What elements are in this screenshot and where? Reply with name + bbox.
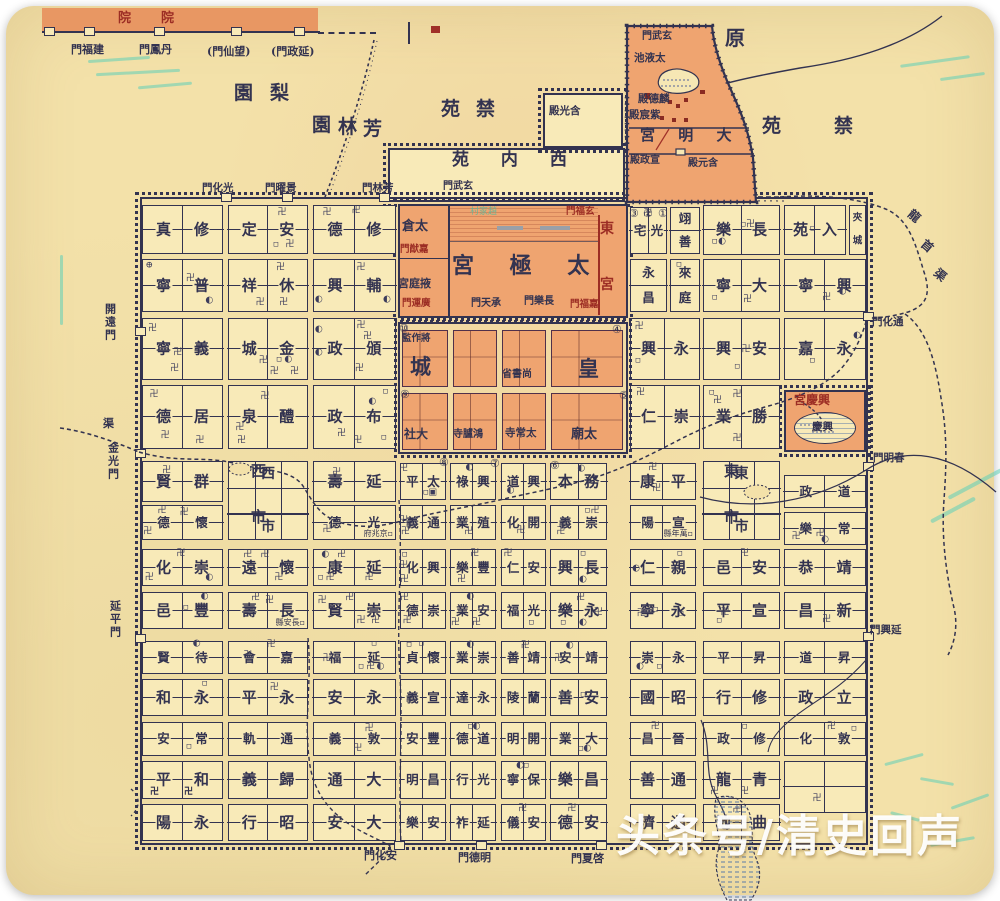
temple-swastika-icon: 卍 xyxy=(451,619,460,628)
ward-name-char: 光 xyxy=(650,224,665,237)
temple-swastika-icon: 卍 xyxy=(278,208,287,217)
temple-swastika-icon: 卍 xyxy=(322,525,331,534)
ward-cross-line xyxy=(422,549,423,586)
ward-name-char: 宅 xyxy=(633,224,648,237)
ward-name-char: 崇 xyxy=(673,410,690,425)
ward-name-char: 光 xyxy=(367,516,382,529)
gate-opening-icon xyxy=(596,841,607,850)
ward-name-char: 安 xyxy=(405,733,420,746)
ward-cross-line xyxy=(354,461,355,502)
office-square-icon: ▫ xyxy=(317,574,323,583)
temple-swastika-icon: 卍 xyxy=(399,464,408,473)
ward-name-char: 興 xyxy=(426,561,441,574)
imperial-city-label: 皇 xyxy=(578,358,599,380)
ward-cross-line xyxy=(182,461,183,502)
ward-cross-line xyxy=(422,679,423,716)
temple-swastika-icon: 卍 xyxy=(237,436,246,445)
halfmoon-symbol-icon: ◐ xyxy=(579,619,587,628)
imperial-city-block xyxy=(402,393,448,450)
ward-name-char: 大 xyxy=(365,773,382,788)
ward-賢群: 賢群卍 xyxy=(142,461,223,502)
ward-name-char: 崇 xyxy=(584,516,599,529)
ward-cross-line xyxy=(662,463,663,500)
temple-swastika-icon: 卍 xyxy=(270,367,279,376)
ward-昌晉: 昌晉卍 xyxy=(630,722,696,756)
ward-name-char: 通 xyxy=(327,773,344,788)
canal-label: 渠 xyxy=(103,418,114,430)
daming-palace-label: 宮 明 大 xyxy=(640,128,740,144)
street-number-marker: ⑩ xyxy=(399,323,409,334)
ward-name-char: 樂 xyxy=(799,522,814,535)
ward-name-char: 待 xyxy=(194,651,209,664)
gate-guanghua: 門化光 xyxy=(202,183,234,194)
gate-fanglin: 門林芳 xyxy=(362,183,394,194)
ward-政修: 政修▫ xyxy=(703,722,780,756)
ward-name-char: 安 xyxy=(527,816,542,829)
ward-name-char: 普 xyxy=(193,278,210,293)
temple-swastika-icon: 卍 xyxy=(270,684,279,693)
ward-name-char: 布 xyxy=(365,410,382,425)
ward-仁親: 仁親◐▫ xyxy=(630,549,696,586)
office-square-icon: ▫ xyxy=(716,617,722,626)
gate-opening-icon xyxy=(135,327,146,336)
office-square-icon: ▫ xyxy=(678,610,684,619)
office-square-icon: ▫ xyxy=(528,619,534,628)
ward-cross-line xyxy=(523,722,524,756)
ward-壽延: 壽延卍 xyxy=(313,461,396,502)
gate-xuanfu: 門福玄 xyxy=(566,207,595,217)
ward-name-char: 仁 xyxy=(639,560,656,575)
temple-swastika-icon: 卍 xyxy=(150,390,159,399)
watermark-text: 头条号/清史回声 xyxy=(616,800,964,864)
ward-name-char: 翊 xyxy=(678,213,693,226)
temple-swastika-icon: 卍 xyxy=(371,617,380,626)
gate-mingde: 門德明 xyxy=(458,852,491,864)
liyuan-label: 梨 xyxy=(270,84,289,104)
gate-changle: 門樂長 xyxy=(524,297,554,308)
halfmoon-symbol-icon: ◐ xyxy=(632,564,640,573)
market-street-line xyxy=(754,461,755,540)
street-number-marker: ① xyxy=(658,208,668,219)
ward-夾城: 夾城 xyxy=(849,205,866,255)
temple-swastika-icon: 卍 xyxy=(274,574,283,583)
temple-swastika-icon: 卍 xyxy=(740,549,749,558)
ward-cross-line xyxy=(267,205,268,254)
ward-德光: 德光卍府兆京▫ xyxy=(313,505,396,540)
ward-name-char: 光 xyxy=(527,604,542,617)
temple-swastika-icon: 卍 xyxy=(355,365,364,374)
ward-name-char: 常 xyxy=(194,733,209,746)
street-number-marker: ⑤ xyxy=(619,390,629,401)
temple-swastika-icon: 卍 xyxy=(732,435,741,444)
market-street-line xyxy=(281,461,282,540)
ward-name-char: 立 xyxy=(836,690,853,705)
ward-康平: 康平卍卍 xyxy=(630,463,696,500)
temple-swastika-icon: 卍 xyxy=(732,390,741,399)
ward-name-char: 樂 xyxy=(405,816,420,829)
gate-yanzheng: (門政延) xyxy=(271,46,314,58)
temple-swastika-icon: 卍 xyxy=(635,323,644,332)
office-square-icon: ▫ xyxy=(276,355,282,364)
ward-name-char: 道 xyxy=(799,651,814,664)
ward-name-char: 祿 xyxy=(455,475,470,488)
office-square-icon: ▫ xyxy=(371,640,377,649)
ward-安常: 安常▫ xyxy=(142,722,223,756)
gate-danfeng: 門鳳丹 xyxy=(139,44,172,56)
ward-name-char: 和 xyxy=(155,690,172,705)
ward-name-char: 豐 xyxy=(193,603,210,618)
ward-name-char: 寧 xyxy=(155,278,172,293)
temple-swastika-icon: 卍 xyxy=(195,436,204,445)
office-square-icon: ▫ xyxy=(635,357,641,366)
temple-swastika-icon: 卍 xyxy=(710,788,719,797)
temple-swastika-icon: 卍 xyxy=(290,367,299,376)
gate-wangxian: (門仙望) xyxy=(207,46,250,58)
ward-泉醴: 泉醴卍卍卍 xyxy=(228,385,308,449)
imperial-city-block xyxy=(453,393,497,450)
ward-明開: 明開 xyxy=(501,722,546,756)
ward-name-char: 輔 xyxy=(365,278,382,293)
plateau-label: 原 xyxy=(725,28,745,49)
ward-name-char: 軌 xyxy=(242,733,257,746)
ward-cross-line xyxy=(422,722,423,756)
dashe-label: 社大 xyxy=(404,428,428,441)
ward-安大: 安大 xyxy=(313,804,396,841)
ward-name-char: 福 xyxy=(506,604,521,617)
office-square-icon: ▫ xyxy=(676,261,682,270)
temple-swastika-icon: 卍 xyxy=(651,723,660,732)
ward-cross-line xyxy=(523,463,524,500)
academy-label: 院 xyxy=(161,12,174,26)
ward-name-char: 保 xyxy=(527,774,542,787)
ward-name-char: 樂 xyxy=(455,561,470,574)
ward-樂安: 樂安 xyxy=(400,804,446,841)
honglu-si-label: 寺臚鴻 xyxy=(453,430,483,441)
ward-邑安: 邑安卍 xyxy=(703,549,780,586)
ward-name-char: 賢 xyxy=(156,651,171,664)
fanglin-garden-label: 芳 xyxy=(363,120,382,140)
palace-inner-wall xyxy=(400,258,448,259)
ward-cross-line xyxy=(422,592,423,629)
ward-cross-line xyxy=(523,679,524,716)
ward-name-char: 平 xyxy=(155,773,172,788)
halfmoon-symbol-icon: ◐ xyxy=(473,722,481,731)
temple-swastika-icon: 卍 xyxy=(576,593,585,602)
river-streak-icon xyxy=(60,255,63,325)
ward-name-char: 明 xyxy=(506,733,521,746)
temple-swastika-icon: 卍 xyxy=(186,275,195,284)
temple-swastika-icon: 卍 xyxy=(470,549,479,558)
temple-swastika-icon: 卍 xyxy=(648,463,657,472)
ward-來庭: 來庭▫ xyxy=(670,259,700,312)
taimiao-label: 廟太 xyxy=(571,428,597,442)
west-market-label: 市 xyxy=(251,510,266,526)
ward-name-char: 延 xyxy=(365,474,382,489)
temple-swastika-icon: 卍 xyxy=(636,389,645,398)
ward-name-char: 嘉 xyxy=(797,342,814,357)
ward-name-char: 定 xyxy=(241,222,258,237)
ward-name-char: 開 xyxy=(527,733,542,746)
ward-name-char: 道 xyxy=(837,485,852,498)
street-number-marker: ② xyxy=(643,208,653,219)
ward-name-char: 宣 xyxy=(671,516,686,529)
ward-name-char: 入 xyxy=(821,223,838,238)
ward-name-char: 常 xyxy=(837,522,852,535)
ward-name-char: 寧 xyxy=(155,342,172,357)
ward-name-char: 永 xyxy=(278,690,295,705)
ward-name-char: 國 xyxy=(639,690,656,705)
office-square-icon: ▫ xyxy=(656,662,662,671)
ward-善通: 善通 xyxy=(630,761,696,799)
ward-name-char: 開 xyxy=(527,516,542,529)
gate-qixia: 門夏啓 xyxy=(571,853,604,865)
ward-崇永: 崇永◐▫ xyxy=(630,641,696,674)
ward-龍青: 龍青卍卍 xyxy=(703,761,780,799)
ward-cross-line xyxy=(578,679,579,716)
ward-寧保: 寧保◐▫ xyxy=(501,761,546,799)
ward-安豐: 安豐 xyxy=(400,722,446,756)
ward-name-char: 善 xyxy=(557,690,574,705)
ward-cross-line xyxy=(472,679,473,716)
temple-swastika-icon: 卍 xyxy=(720,609,729,618)
ward-name-char: 安 xyxy=(156,733,171,746)
ward-name-char: 業 xyxy=(558,733,573,746)
ward-樂昌: 樂昌 xyxy=(550,761,607,799)
imperial-city-label: 城 xyxy=(410,356,431,378)
shangshu-sheng-label: 省書尚 xyxy=(502,370,532,381)
ward-name-char: 豐 xyxy=(426,733,441,746)
hanguang-hall-compound xyxy=(543,93,623,148)
ward-name-char: 永 xyxy=(671,651,686,664)
temple-swastika-icon: 卍 xyxy=(353,744,362,753)
ward-義宣: 義宣 xyxy=(400,679,446,716)
ward-cross-line xyxy=(662,761,663,799)
halfmoon-symbol-icon: ◐ xyxy=(315,295,323,304)
office-square-icon: ▫ xyxy=(418,640,424,649)
ward-name-char: 壽 xyxy=(241,603,258,618)
ward-cross-line xyxy=(662,549,663,586)
flag-tick xyxy=(408,22,410,44)
gate-opening-icon xyxy=(135,449,146,458)
ward-name-char: 安 xyxy=(278,222,295,237)
office-square-icon: ▫ xyxy=(406,641,412,650)
gate-jiafu: 門福嘉 xyxy=(570,300,599,310)
ward-恭靖: 恭靖 xyxy=(784,549,866,586)
ward-name-char: 行 xyxy=(455,774,470,787)
ward-業大: 業大▫◐ xyxy=(550,722,607,756)
office-square-icon: ▫ xyxy=(482,736,488,745)
temple-swastika-icon: 卍 xyxy=(157,506,166,515)
office-square-icon: ▫ xyxy=(810,225,816,234)
ward-德居: 德居卍卍卍 xyxy=(142,385,223,449)
ward-寧興: 寧興卍◐ xyxy=(784,259,866,312)
halfmoon-symbol-icon: ◐ xyxy=(821,535,829,544)
temple-swastika-icon: 卍 xyxy=(345,593,354,602)
ward-儀安: 儀安卍 xyxy=(501,804,546,841)
temple-swastika-icon: 卍 xyxy=(260,550,269,559)
imperial-city-block xyxy=(453,330,497,387)
ward-翊善: 翊善 xyxy=(670,207,700,254)
ward-name-char: 興 xyxy=(327,278,344,293)
office-square-icon: ▫ xyxy=(560,619,566,628)
office-square-icon: ▫ xyxy=(202,680,208,689)
forbidden-park-label: 禁 xyxy=(476,100,495,120)
ward-name-char: 化 xyxy=(799,733,814,746)
ward-cross-line xyxy=(662,592,663,629)
ward-行修: 行修 xyxy=(703,679,780,716)
ward-會嘉: 會嘉卍卍 xyxy=(228,641,308,674)
ward-嘉永: 嘉永▫◐ xyxy=(784,318,866,380)
street-number-marker: ⑨ xyxy=(400,389,410,400)
ward-cross-line xyxy=(824,259,825,312)
ward-name-char: 敦 xyxy=(837,733,852,746)
ward-福光: 福光▫ xyxy=(501,592,546,629)
ward-樂長: 樂長▫卍▫◐ xyxy=(703,205,780,255)
ward-遠懷: 遠懷卍卍卍 xyxy=(228,549,308,586)
ward-name-char: 和 xyxy=(193,773,210,788)
temple-swastika-icon: 卍 xyxy=(652,485,661,494)
fanglin-garden-label: 林 xyxy=(338,118,357,138)
academy-label: 院 xyxy=(118,12,131,26)
ward-壽長: 壽長卍卍縣安長▫ xyxy=(228,592,308,629)
ward-化興: 化興▫卍卍 xyxy=(400,549,446,586)
gate-xuanwu-westpark: 門武玄 xyxy=(443,182,473,193)
taicang-label: 倉太 xyxy=(402,220,428,234)
ward-業殖: 業殖卍 xyxy=(450,505,496,540)
ward-name-char: 善 xyxy=(506,651,521,664)
ward-化敦: 化敦卍▫ xyxy=(784,722,866,756)
east-palace-label: 宮 xyxy=(600,278,614,293)
ward-name-char: 明 xyxy=(405,774,420,787)
ward-name-char: 昌 xyxy=(426,774,441,787)
gate-chunming: 門明春 xyxy=(873,453,905,464)
ward-name-char: 陽 xyxy=(155,815,172,830)
office-square-icon: ▫ xyxy=(358,663,364,672)
ward-name-char: 通 xyxy=(670,773,687,788)
gate-jingyao: 門曜景 xyxy=(265,183,297,194)
ward-name-char: 晉 xyxy=(671,733,686,746)
temple-swastika-icon: 卍 xyxy=(399,516,408,525)
gate-yanxing: 門興延 xyxy=(870,625,902,636)
ward-name-char: 貞 xyxy=(405,651,420,664)
gate-guangyun: 門運廣 xyxy=(402,299,431,309)
ward-name-char: 仁 xyxy=(640,410,657,425)
ward-cross-line xyxy=(741,592,742,629)
ward-cross-line xyxy=(422,804,423,841)
office-square-icon: ▣ xyxy=(428,489,437,498)
office-square-icon: ▫ xyxy=(677,549,683,558)
ward-name-char: 政 xyxy=(799,485,814,498)
ward-西市: 西市 xyxy=(228,461,308,540)
linde-hall-label: 殿德麟 xyxy=(638,94,670,105)
ward-name-char: 業 xyxy=(455,604,470,617)
ward-name-char: 安 xyxy=(751,342,768,357)
temple-swastika-icon: 卍 xyxy=(148,324,157,333)
ward-cross-line xyxy=(354,259,355,312)
ward-name-char: 延 xyxy=(476,816,491,829)
ward-name-char: 永 xyxy=(193,690,210,705)
ward-cross-line xyxy=(182,804,183,841)
ward-cross-line xyxy=(267,318,268,380)
halfmoon-symbol-icon: ◐ xyxy=(583,744,591,753)
taiji-palace-label: 宮 極 太 xyxy=(452,255,603,278)
ward-仁安: 仁安卍 xyxy=(501,549,546,586)
ward-德懷: 德懷卍卍卍 xyxy=(142,505,223,540)
east-market-label: 市 xyxy=(724,510,739,526)
ward-name-char: 永 xyxy=(365,690,382,705)
temple-swastika-icon: 卍 xyxy=(403,617,412,626)
ward-name-char: 業 xyxy=(715,410,732,425)
office-square-icon: ▫ xyxy=(809,357,815,366)
ward-name-char: 德 xyxy=(155,410,172,425)
ward-name-char: 達 xyxy=(455,691,470,704)
ward-cross-line xyxy=(824,475,825,508)
temple-swastika-icon: 卍 xyxy=(276,264,285,273)
grey-dash xyxy=(540,226,570,230)
ward-cross-line xyxy=(354,679,355,716)
temple-swastika-icon: 卍 xyxy=(356,264,365,273)
ward-化開: 化開卍 xyxy=(501,505,546,540)
halfmoon-symbol-icon: ◐ xyxy=(201,593,209,602)
ward-義通: 義通卍卍 xyxy=(400,505,446,540)
temple-swastika-icon: 卍 xyxy=(822,615,831,624)
ward-name-char: 儀 xyxy=(506,816,521,829)
ward-行昭: 行昭 xyxy=(228,804,308,841)
forbidden-park-label: 禁 xyxy=(834,117,853,137)
gate-yanping: 延平門 xyxy=(109,600,121,639)
ward-樂豐: 樂豐卍卍 xyxy=(450,549,496,586)
gate-opening-icon xyxy=(135,634,146,643)
temple-swastika-icon: 卍 xyxy=(822,293,831,302)
ward-name-char: 遠 xyxy=(241,560,258,575)
ward-寧普: 寧普⊕卍◐ xyxy=(142,259,223,312)
ward-name-char: 業 xyxy=(455,651,470,664)
ward-name-char: 祚 xyxy=(455,816,470,829)
ward-name-char: 陵 xyxy=(506,691,521,704)
temple-swastika-icon: 卍 xyxy=(401,528,410,537)
ward-賢崇: 賢崇卍卍卍卍 xyxy=(313,592,396,629)
ward-cross-line xyxy=(472,761,473,799)
ward-name-char: 昇 xyxy=(752,651,767,664)
ward-name-char: 修 xyxy=(193,222,210,237)
ward-name-char: 永 xyxy=(641,267,656,280)
gate-opening-icon xyxy=(221,193,232,202)
temple-swastika-icon: 卍 xyxy=(337,550,346,559)
office-square-icon: ▫ xyxy=(741,723,747,732)
ward-寧永: 寧永▫卍▫ xyxy=(630,592,696,629)
ward-name-char: 嘉 xyxy=(279,651,294,664)
ward-cross-line xyxy=(662,679,663,716)
temple-swastika-icon: 卍 xyxy=(256,298,265,307)
temple-swastika-icon: 卍 xyxy=(161,431,170,440)
market-street-line xyxy=(227,513,309,514)
halfmoon-symbol-icon: ◐ xyxy=(466,641,474,650)
ward-cross-line xyxy=(354,549,355,586)
temple-swastika-icon: 卍 xyxy=(180,508,189,517)
temple-swastika-icon: 卍 xyxy=(713,396,722,405)
ward-name-char: 政 xyxy=(797,690,814,705)
ward-name-char: 宣 xyxy=(426,691,441,704)
ward-貞懷: 貞懷▫▫ xyxy=(400,641,446,674)
temple-swastika-icon: 卍 xyxy=(251,593,260,602)
temple-swastika-icon: 卍 xyxy=(792,533,801,542)
north-park-wall-dashed xyxy=(318,32,376,34)
temple-swastika-icon: 卍 xyxy=(337,430,346,439)
temple-swastika-icon: 卍 xyxy=(235,424,244,433)
halfmoon-symbol-icon: ◐ xyxy=(839,287,847,296)
ward-name-char: 平 xyxy=(670,474,687,489)
ward-cross-line xyxy=(664,385,665,449)
